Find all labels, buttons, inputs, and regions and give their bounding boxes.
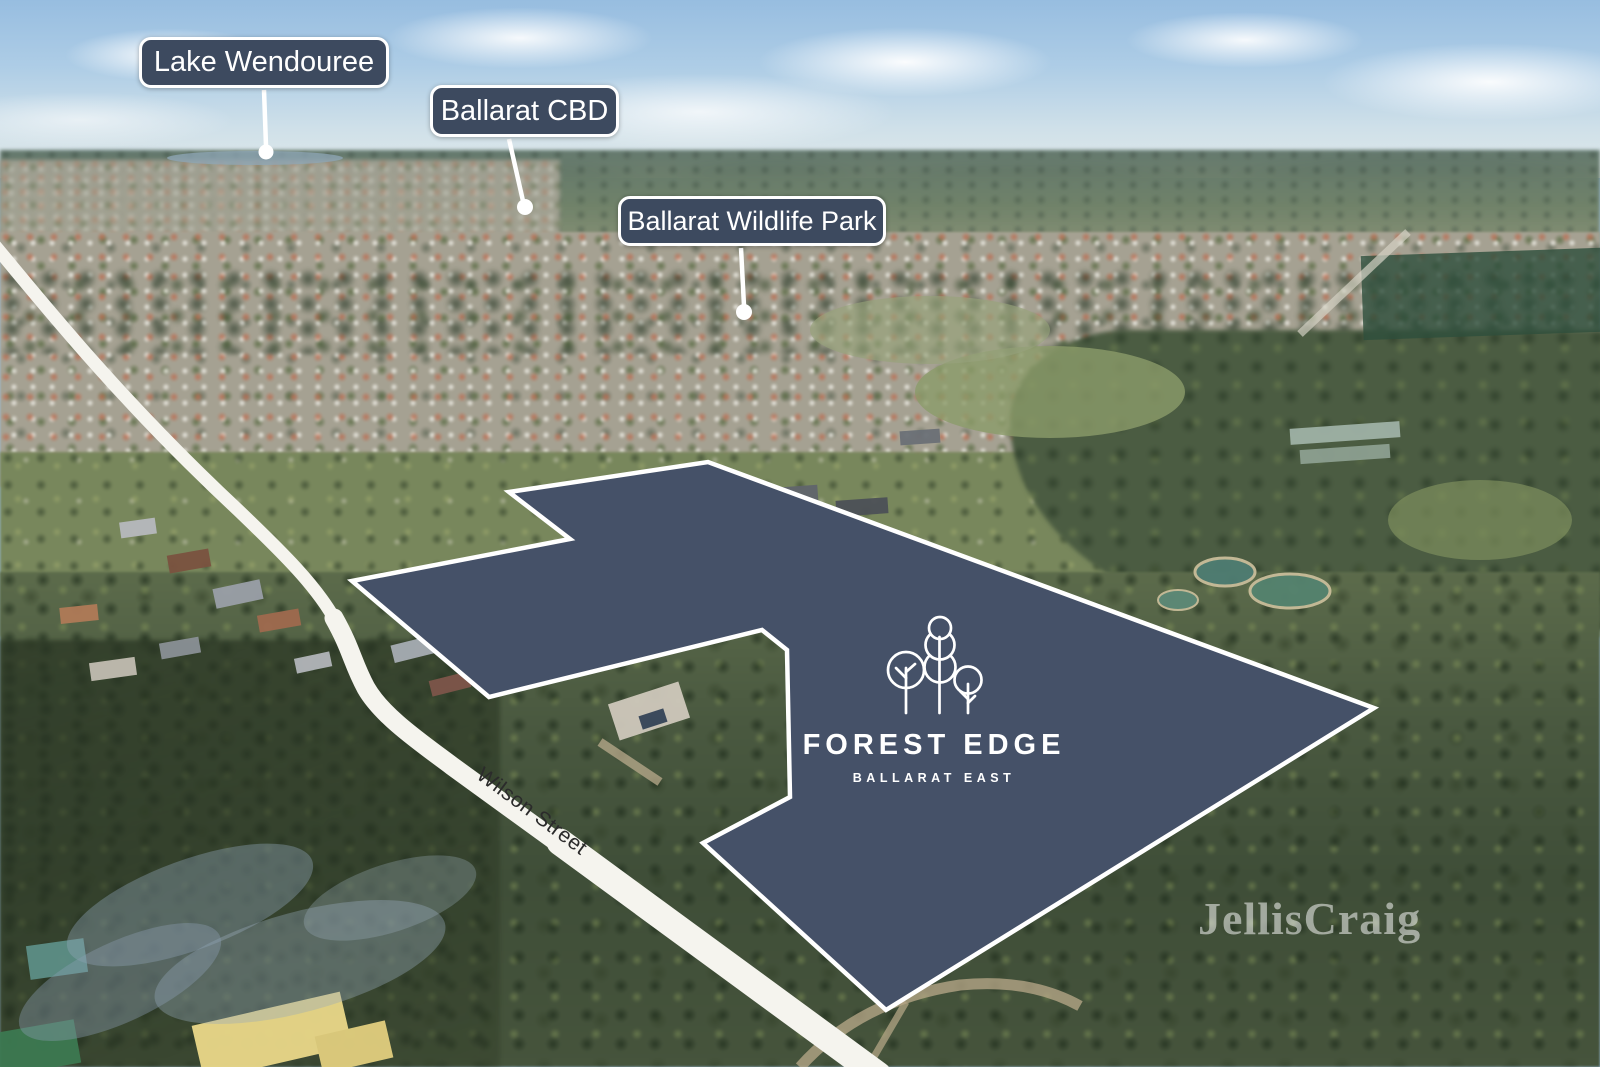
callout-lake-wendouree: Lake Wendouree (139, 37, 389, 88)
aerial-photo: Lake Wendouree Ballarat CBD Ballarat Wil… (0, 0, 1600, 1067)
callout-ballarat-cbd: Ballarat CBD (430, 85, 619, 137)
site-logo-title: FOREST EDGE (782, 729, 1086, 762)
watermark-logo: JellisCraig (1198, 892, 1421, 945)
callout-ballarat-wildlife-park-label: Ballarat Wildlife Park (627, 206, 876, 237)
callout-ballarat-wildlife-park: Ballarat Wildlife Park (618, 196, 886, 246)
callout-lake-wendouree-label: Lake Wendouree (154, 46, 374, 79)
site-logo-subtitle: BALLARAT EAST (782, 771, 1086, 785)
callout-ballarat-cbd-label: Ballarat CBD (441, 95, 609, 128)
